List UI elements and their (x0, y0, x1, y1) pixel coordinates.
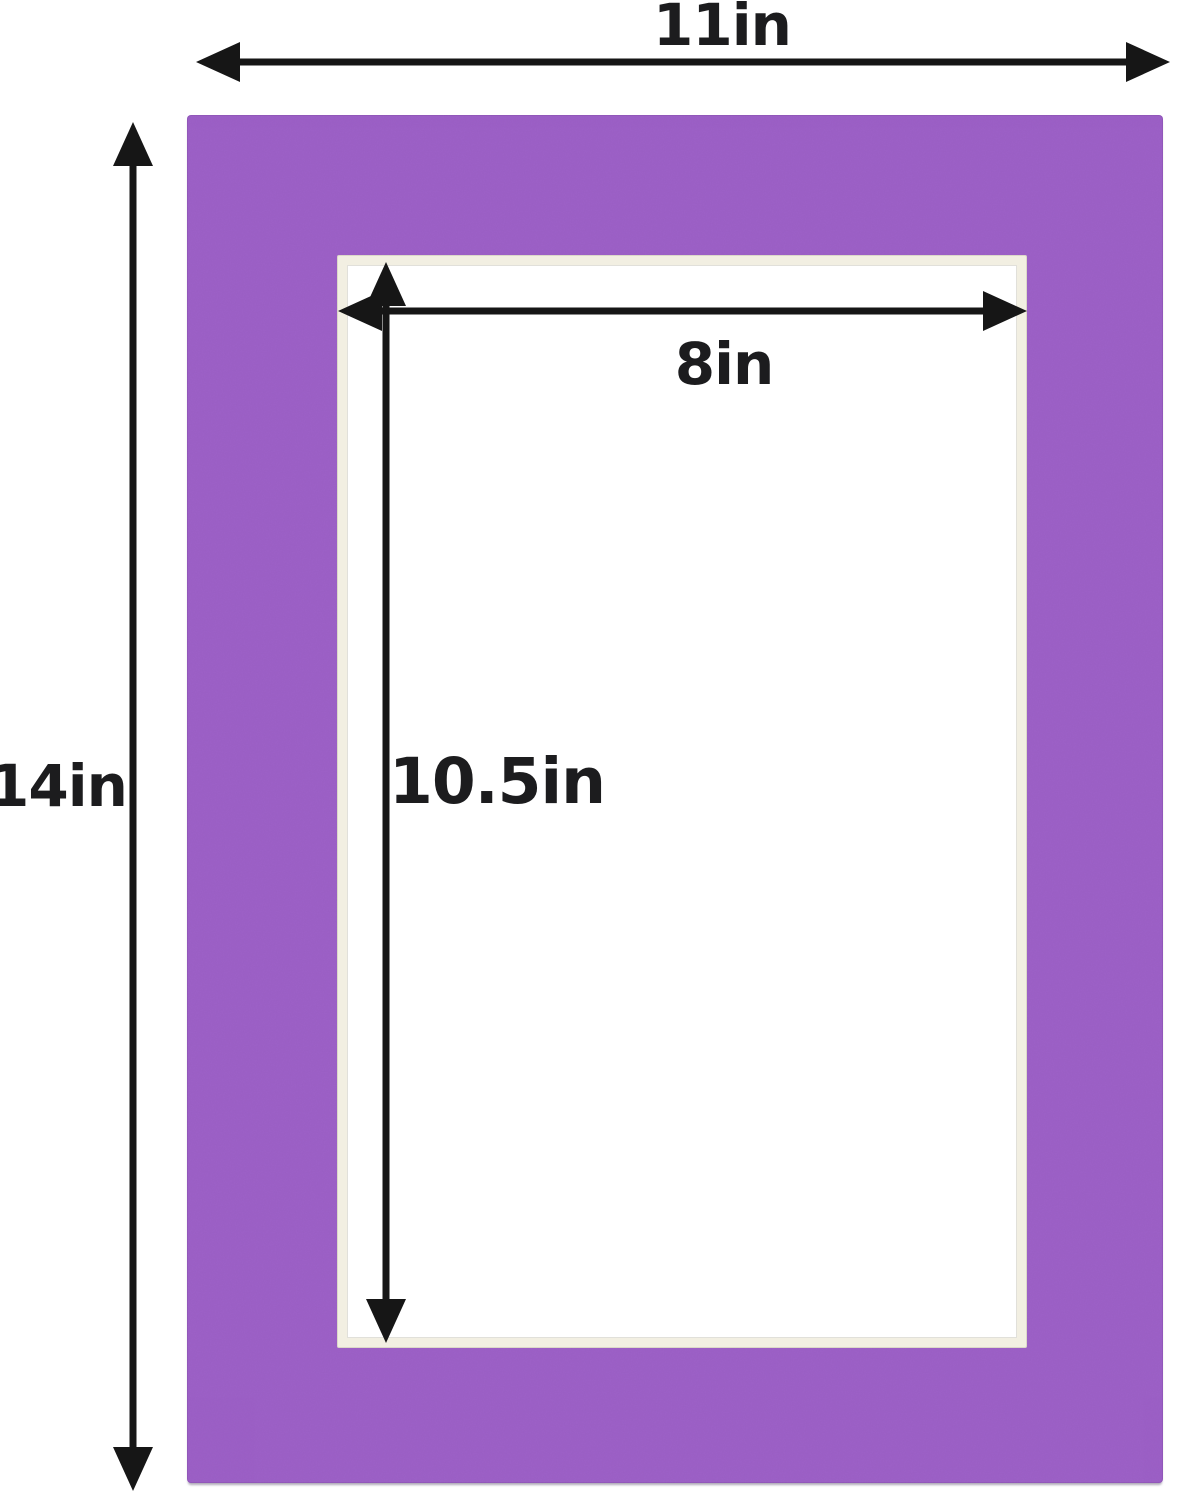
outer-width-label: 11in (653, 0, 791, 54)
outer-height-arrowhead-bottom (113, 1447, 153, 1491)
mat-board (187, 115, 1163, 1483)
outer-height-arrowhead-top (113, 122, 153, 166)
opening-height-label: 10.5in (389, 750, 605, 813)
outer-width-arrowhead-right (1126, 42, 1170, 82)
outer-width-arrowhead-left (196, 42, 240, 82)
opening-width-label: 8in (675, 335, 774, 393)
mat-dimension-diagram: 11in 14in 8in 10.5in (0, 0, 1177, 1500)
outer-height-label: 14in (0, 757, 127, 815)
